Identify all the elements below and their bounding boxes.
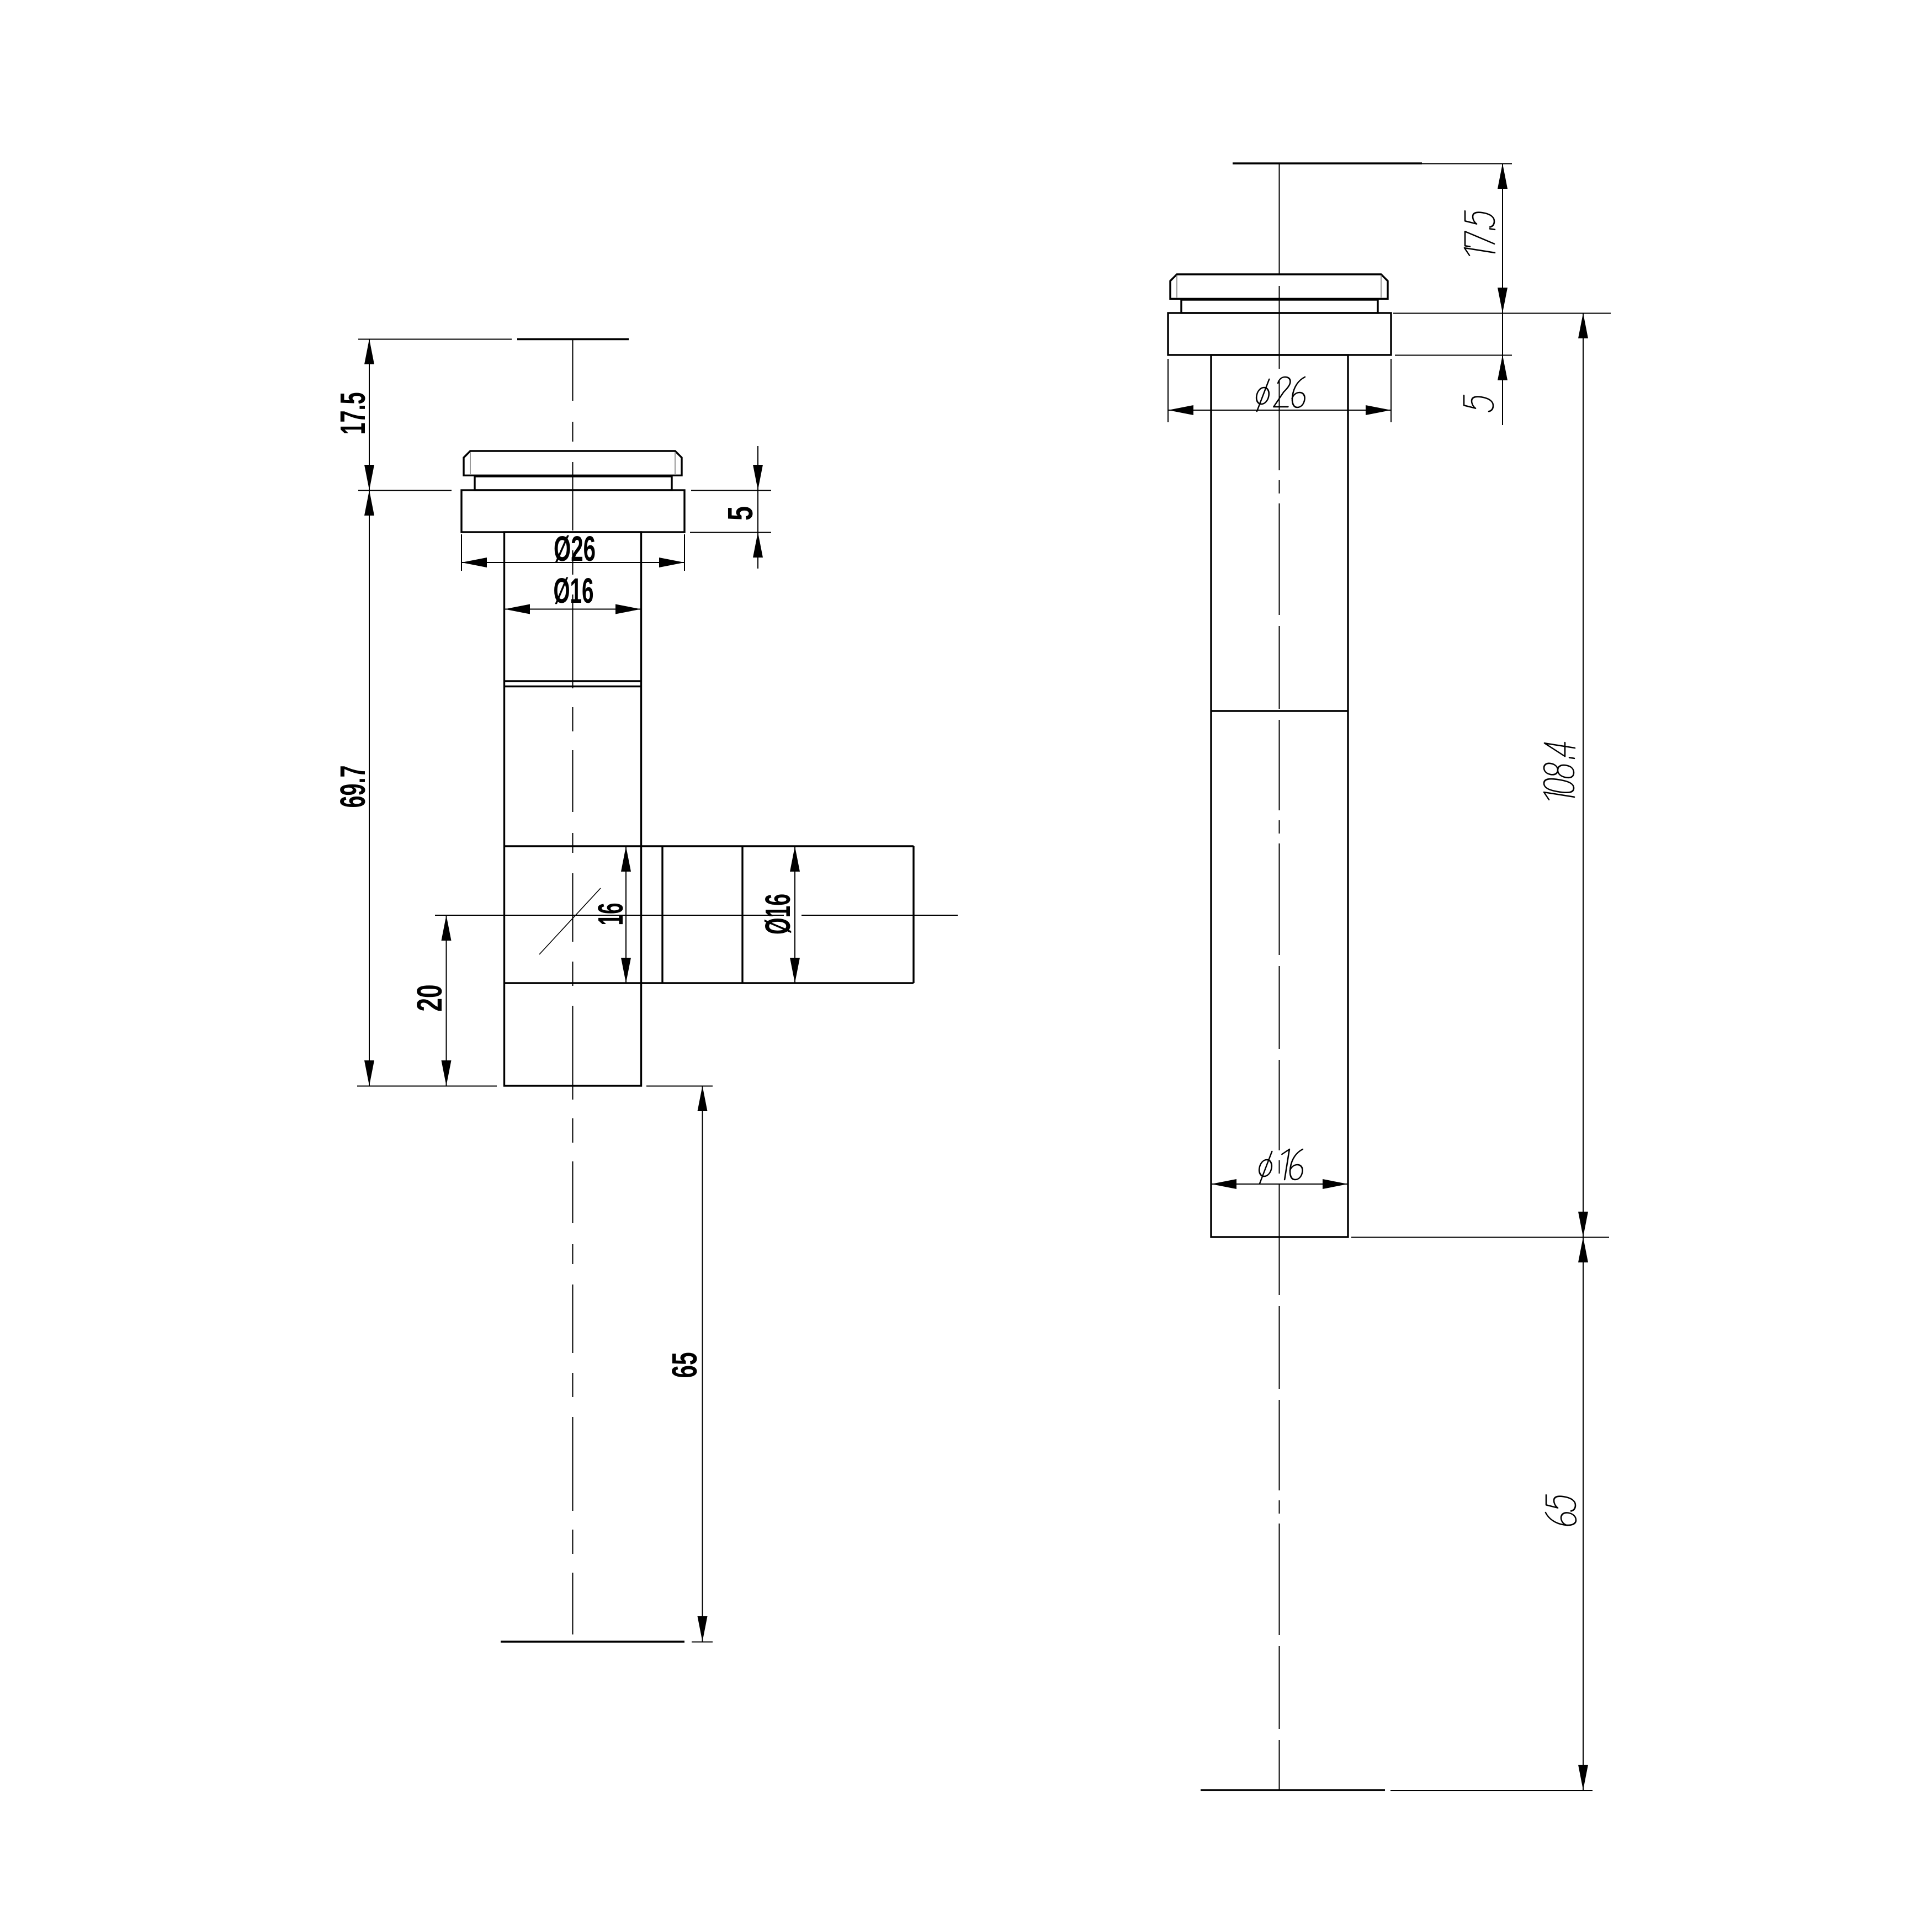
svg-text:65: 65 <box>665 1352 704 1378</box>
svg-text:Ø16: Ø16 <box>554 571 594 611</box>
svg-text:20: 20 <box>410 985 449 1012</box>
svg-text:Ø16: Ø16 <box>758 894 798 935</box>
svg-text:16: 16 <box>591 903 630 926</box>
svg-text:Ø26: Ø26 <box>554 529 596 569</box>
svg-text:69.7: 69.7 <box>333 766 373 808</box>
svg-text:17.5: 17.5 <box>333 392 373 435</box>
svg-text:5: 5 <box>720 506 760 521</box>
